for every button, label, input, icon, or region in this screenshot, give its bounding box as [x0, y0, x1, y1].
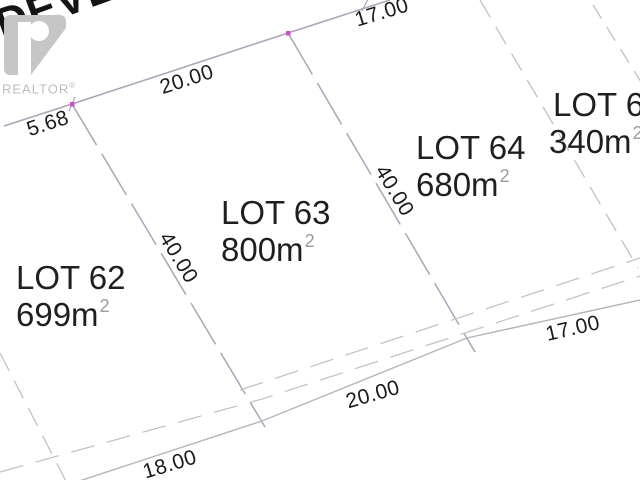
survey-marker-dot [70, 102, 75, 107]
lot-64-name: LOT 64 [416, 132, 525, 163]
lot-65-name: LOT 65 [553, 89, 640, 120]
lot-62-name: LOT 62 [16, 262, 125, 293]
lot-63-label: LOT 63 800m2 [221, 197, 330, 265]
lot-64-area: 680m2 [416, 163, 525, 200]
lot65-east-boundary-line [593, 5, 640, 82]
realtor-logo: REALTOR® [4, 15, 74, 82]
lot-63-name: LOT 63 [221, 197, 330, 228]
lot-62-label: LOT 62 699m2 [16, 262, 125, 330]
lot62-west-boundary-line [0, 353, 71, 480]
realtor-brand-text: REALTOR® [2, 81, 82, 96]
lot-62-area: 699m2 [16, 293, 125, 330]
survey-plan-image: DEVEL REALTOR® LOT 62 699m2 LOT 63 800m2… [0, 0, 640, 480]
survey-marker-dot [286, 31, 291, 36]
lot-65-area: 340m2 [549, 120, 640, 157]
lot-63-area: 800m2 [221, 228, 330, 265]
realtor-r-icon [4, 15, 66, 77]
lot-65-label: LOT 65 340m2 [553, 89, 640, 157]
lot-64-label: LOT 64 680m2 [416, 132, 525, 200]
